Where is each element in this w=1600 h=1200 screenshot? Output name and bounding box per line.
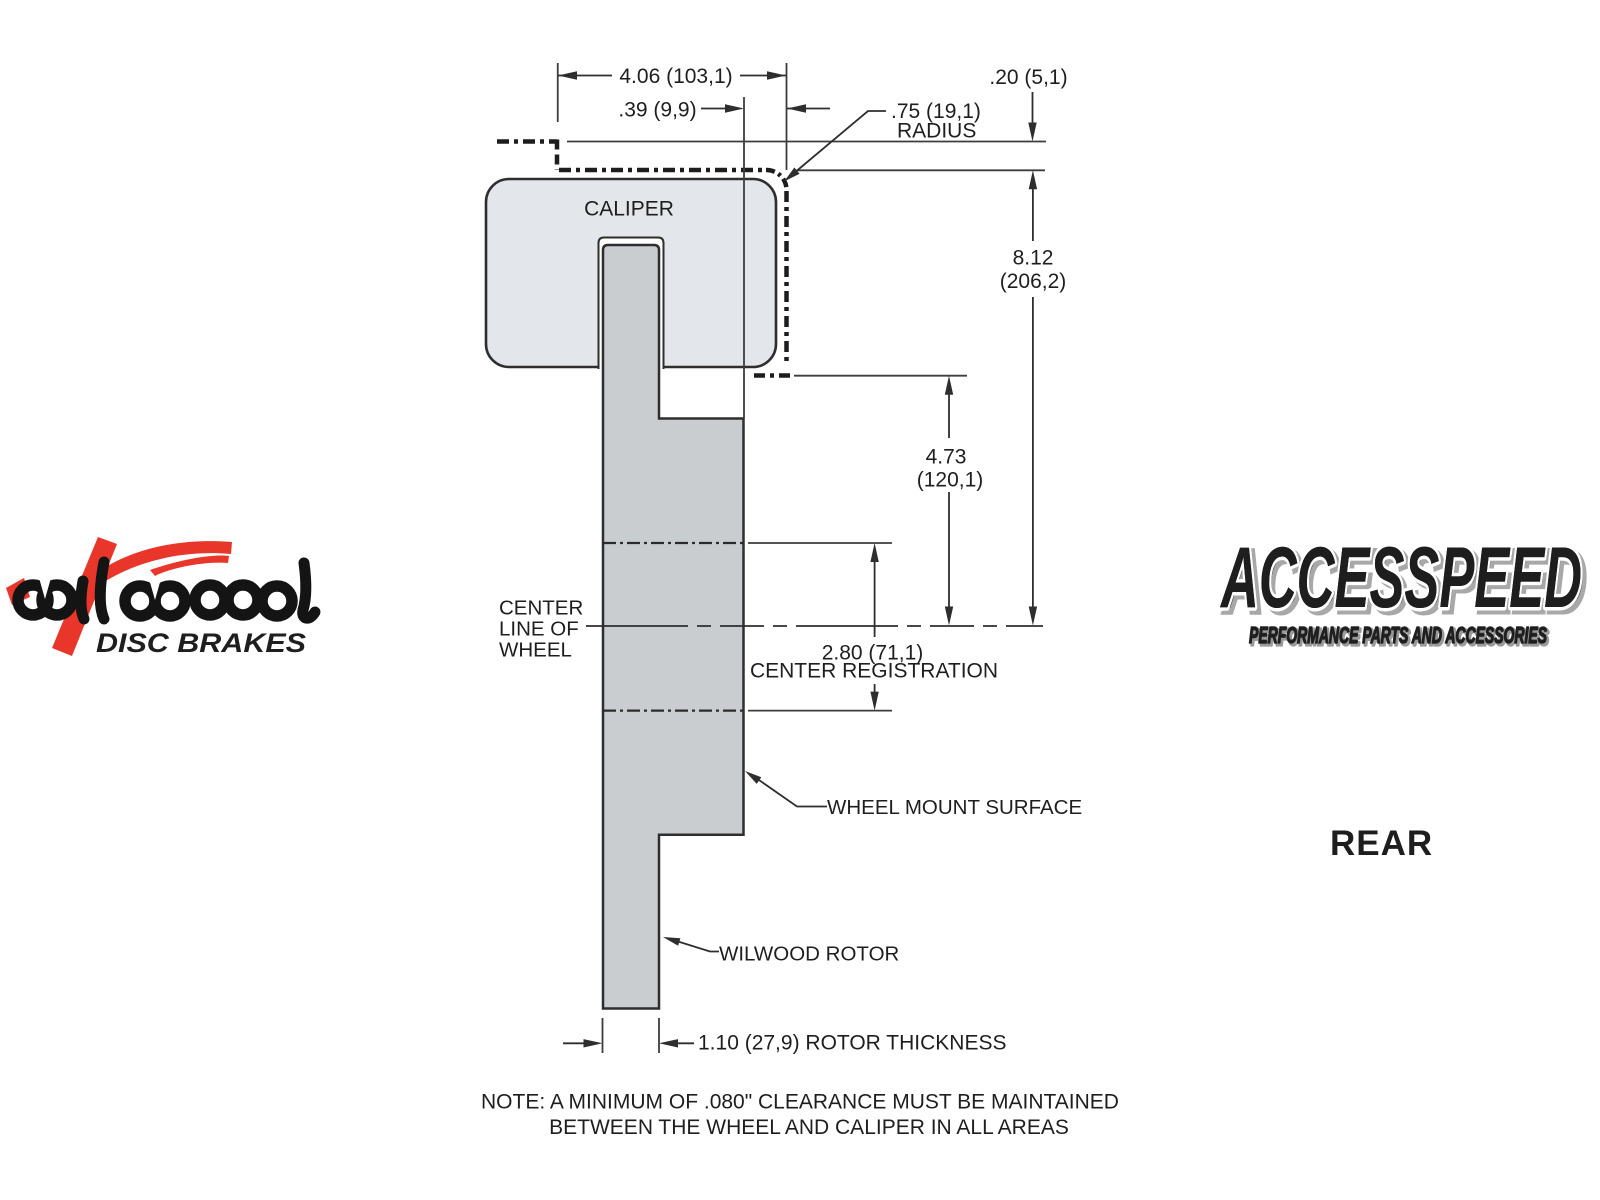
svg-text:NOTE: A MINIMUM OF .080" CLEAR: NOTE: A MINIMUM OF .080" CLEARANCE MUST … bbox=[481, 1091, 1119, 1114]
svg-text:1.10 (27,9) ROTOR THICKNESS: 1.10 (27,9) ROTOR THICKNESS bbox=[698, 1032, 1007, 1055]
svg-text:RADIUS: RADIUS bbox=[897, 120, 976, 143]
svg-text:.39 (9,9): .39 (9,9) bbox=[618, 99, 696, 122]
svg-text:4.73: 4.73 bbox=[926, 446, 967, 469]
svg-text:ACCESSPEED: ACCESSPEED bbox=[1220, 530, 1582, 626]
svg-text:(120,1): (120,1) bbox=[917, 469, 984, 492]
svg-text:REAR: REAR bbox=[1330, 824, 1433, 863]
svg-text:.20 (5,1): .20 (5,1) bbox=[989, 66, 1067, 89]
svg-text:4.06 (103,1): 4.06 (103,1) bbox=[619, 65, 732, 88]
svg-text:CENTER: CENTER bbox=[499, 597, 583, 620]
svg-text:CALIPER: CALIPER bbox=[584, 198, 674, 221]
svg-text:BETWEEN THE WHEEL AND CALIPER: BETWEEN THE WHEEL AND CALIPER IN ALL ARE… bbox=[549, 1116, 1069, 1139]
svg-text:DISC BRAKES: DISC BRAKES bbox=[96, 628, 306, 658]
svg-text:(206,2): (206,2) bbox=[1000, 270, 1067, 293]
svg-text:WILWOOD ROTOR: WILWOOD ROTOR bbox=[719, 943, 899, 966]
svg-text:WHEEL MOUNT SURFACE: WHEEL MOUNT SURFACE bbox=[827, 796, 1082, 819]
svg-text:8.12: 8.12 bbox=[1013, 247, 1054, 270]
svg-text:PERFORMANCE PARTS AND ACCESSOR: PERFORMANCE PARTS AND ACCESSORIES bbox=[1249, 622, 1547, 648]
svg-text:LINE OF: LINE OF bbox=[499, 618, 579, 641]
svg-text:CENTER REGISTRATION: CENTER REGISTRATION bbox=[750, 660, 998, 683]
svg-text:WHEEL: WHEEL bbox=[499, 639, 572, 662]
